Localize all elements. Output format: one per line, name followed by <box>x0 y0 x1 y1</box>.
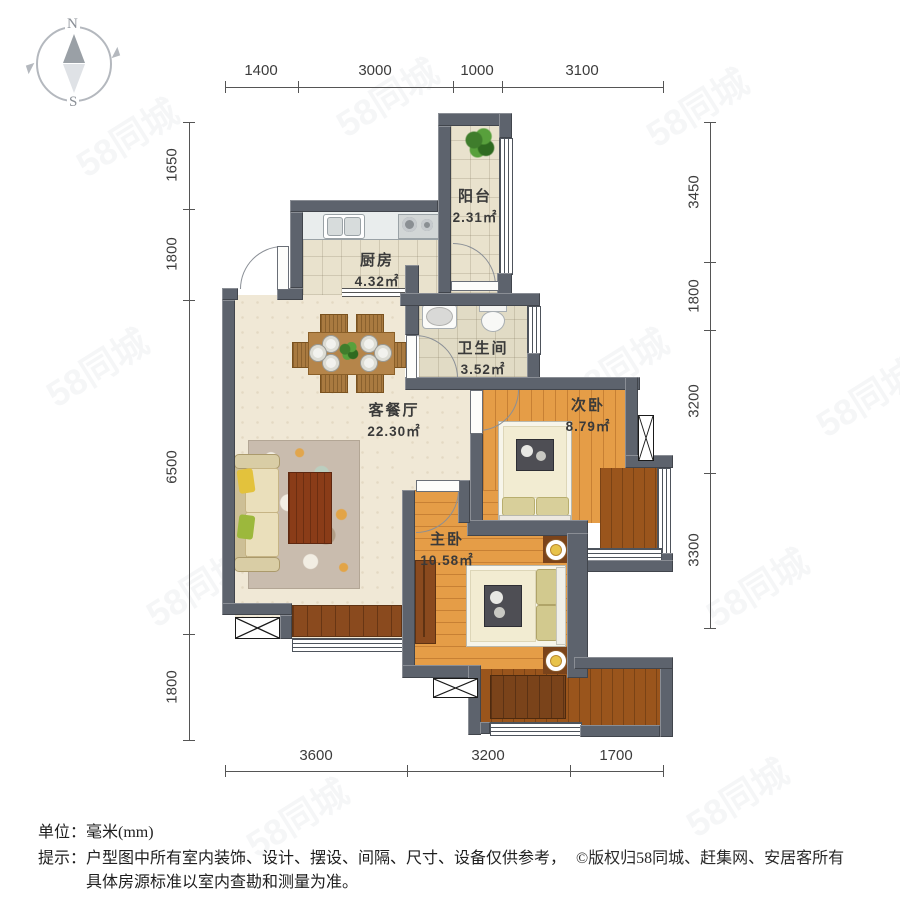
wall <box>499 113 512 138</box>
dimension-line-bottom <box>225 771 663 772</box>
master-bedroom-door <box>416 480 460 492</box>
watermark-text: 58同城 <box>805 344 900 447</box>
dim-top-2: 3000 <box>358 62 391 79</box>
dim-right-2: 1800 <box>686 279 703 312</box>
flue-box <box>433 678 478 698</box>
dim-bottom-2: 3200 <box>471 747 504 764</box>
wall <box>580 725 660 737</box>
dimension-line-right <box>710 122 711 628</box>
tick <box>183 740 195 741</box>
room-label-bathroom: 卫生间 3.52㎡ <box>457 337 508 378</box>
master-bed-tray <box>484 585 522 627</box>
wall <box>625 377 638 463</box>
bathroom-window <box>527 306 541 355</box>
plate <box>374 344 392 362</box>
dining-chair <box>356 372 384 393</box>
floorplan-page: 58同城 58同城 58同城 58同城 58同城 58同城 58同城 58同城 … <box>0 0 900 900</box>
bathroom-door <box>406 335 417 379</box>
room-label-kitchen: 厨房 4.32㎡ <box>355 249 400 290</box>
wall <box>438 126 451 293</box>
wall <box>222 300 235 615</box>
room-name: 次卧 <box>566 394 611 415</box>
tick <box>183 122 195 123</box>
room-name: 主卧 <box>420 528 473 549</box>
room-name: 客餐厅 <box>367 399 420 420</box>
unit-note: 单位：毫米(mm) <box>38 818 154 842</box>
tick <box>453 81 454 93</box>
tray-cup <box>490 591 503 604</box>
sofa-armrest <box>234 454 280 469</box>
tray-cup <box>521 445 533 457</box>
wardrobe <box>415 560 436 644</box>
compass-needle-north-icon <box>63 34 85 63</box>
wall <box>402 490 415 678</box>
wall <box>405 377 640 390</box>
disclaimer-line1: 提示：户型图中所有室内装饰、设计、摆设、间隔、尺寸、设备仅供参考， <box>38 844 566 868</box>
tick <box>704 262 716 263</box>
room-name: 阳台 <box>453 185 498 206</box>
disclaimer-line2: 具体房源标准以室内查勘和测量为准。 <box>86 868 358 892</box>
tick <box>704 628 716 629</box>
unit-value: 毫米(mm) <box>86 824 154 841</box>
stove-burner <box>402 217 417 232</box>
table-plant-icon <box>339 342 359 360</box>
tick <box>663 81 664 93</box>
dim-right-4: 3300 <box>686 533 703 566</box>
room-area: 4.32㎡ <box>355 270 400 290</box>
wall <box>574 657 673 669</box>
room-label-living: 客餐厅 22.30㎡ <box>367 399 420 440</box>
wardrobe-rail <box>423 565 425 637</box>
room-name: 卫生间 <box>457 337 508 358</box>
wall <box>400 293 540 306</box>
compass: N S <box>24 14 124 114</box>
tick <box>407 765 408 777</box>
wall <box>222 288 238 300</box>
tray-cup <box>494 607 505 618</box>
dining-chair <box>320 372 348 393</box>
dim-left-2: 1800 <box>164 237 181 270</box>
watermark-text: 58同城 <box>675 744 798 847</box>
room-label-second-bedroom: 次卧 8.79㎡ <box>566 394 611 435</box>
balcony-plant-icon <box>465 128 495 158</box>
room-label-master-bedroom: 主卧 10.58㎡ <box>420 528 473 569</box>
wall <box>280 615 292 639</box>
dim-left-4: 1800 <box>164 670 181 703</box>
master-bed-headboard <box>556 567 566 645</box>
wall <box>290 212 303 288</box>
room-area: 2.31㎡ <box>453 206 498 226</box>
compass-needle-south-icon <box>63 64 85 93</box>
watermark-text: 58同城 <box>35 314 158 417</box>
bedside-lamp-icon <box>545 650 567 672</box>
stove-burner <box>421 219 433 231</box>
compass-arrowhead-icon <box>109 47 120 58</box>
sink-basin <box>344 217 361 236</box>
pillow <box>536 497 569 516</box>
dim-top-3: 1000 <box>460 62 493 79</box>
tick <box>704 330 716 331</box>
compass-north-label: N <box>65 16 80 33</box>
sofa-armrest <box>234 557 280 572</box>
tip-text2: 具体房源标准以室内查勘和测量为准。 <box>86 874 358 891</box>
tip-label: 提示： <box>38 850 86 867</box>
pillow <box>536 569 558 605</box>
tv-cabinet <box>292 605 402 637</box>
bedside-lamp-icon <box>545 539 567 561</box>
tick <box>704 122 716 123</box>
sofa-pillow-green <box>237 514 256 540</box>
tick <box>298 81 299 93</box>
washbasin-bowl <box>426 307 453 326</box>
dim-top-4: 3100 <box>565 62 598 79</box>
dimension-line-left <box>189 122 190 740</box>
room-area: 8.79㎡ <box>566 415 611 435</box>
tip-text1: 户型图中所有室内装饰、设计、摆设、间隔、尺寸、设备仅供参考， <box>86 850 566 867</box>
compass-south-label: S <box>67 94 79 111</box>
watermark-text: 58同城 <box>695 534 818 637</box>
dim-right-3: 3200 <box>686 384 703 417</box>
sink-basin <box>327 217 343 236</box>
tick <box>570 765 571 777</box>
room-area: 10.58㎡ <box>420 549 473 569</box>
dim-left-1: 1650 <box>164 148 181 181</box>
wall <box>574 560 673 572</box>
dim-right-1: 3450 <box>686 175 703 208</box>
flue-box <box>235 617 280 639</box>
flue-box <box>638 415 654 461</box>
dimension-line-top <box>225 87 663 88</box>
tray-cup <box>536 451 546 461</box>
second-bedroom-door <box>470 390 483 434</box>
wall <box>290 200 438 212</box>
dim-left-3: 6500 <box>164 450 181 483</box>
dim-top-1: 1400 <box>244 62 277 79</box>
plate <box>309 344 327 362</box>
room-area: 22.30㎡ <box>367 420 420 440</box>
tick <box>183 300 195 301</box>
copyright: ©版权归58同城、赶集网、安居客所有 <box>576 844 844 868</box>
balcony-door <box>451 281 499 291</box>
dim-bottom-3: 1700 <box>599 747 632 764</box>
master-bedroom-window <box>490 722 582 736</box>
wall <box>660 657 673 737</box>
wall <box>480 722 490 734</box>
tick <box>183 634 195 635</box>
bay-nook-floor <box>600 468 657 553</box>
bay-window-east <box>657 468 671 555</box>
wall <box>222 603 292 615</box>
living-room-window <box>292 638 404 652</box>
wall <box>470 432 483 523</box>
tick <box>502 81 503 93</box>
coffee-table <box>288 472 332 544</box>
unit-label: 单位： <box>38 824 86 841</box>
tick <box>183 209 195 210</box>
pillow <box>502 497 535 516</box>
room-label-balcony: 阳台 2.31㎡ <box>453 185 498 226</box>
balcony-window <box>499 138 513 275</box>
sofa-pillow-yellow <box>236 468 255 494</box>
tick <box>225 81 226 93</box>
tick <box>663 765 664 777</box>
entry-door <box>277 246 289 290</box>
tick <box>704 473 716 474</box>
floorplan: 阳台 2.31㎡ 厨房 4.32㎡ 卫生间 3.52㎡ 客餐厅 22.30㎡ 次… <box>222 113 678 738</box>
room-name: 厨房 <box>355 249 400 270</box>
dim-bottom-1: 3600 <box>299 747 332 764</box>
dresser <box>490 675 566 719</box>
copyright-text: ©版权归58同城、赶集网、安居客所有 <box>576 850 844 867</box>
pillow <box>536 605 558 641</box>
tick <box>225 765 226 777</box>
room-area: 3.52㎡ <box>457 358 508 378</box>
